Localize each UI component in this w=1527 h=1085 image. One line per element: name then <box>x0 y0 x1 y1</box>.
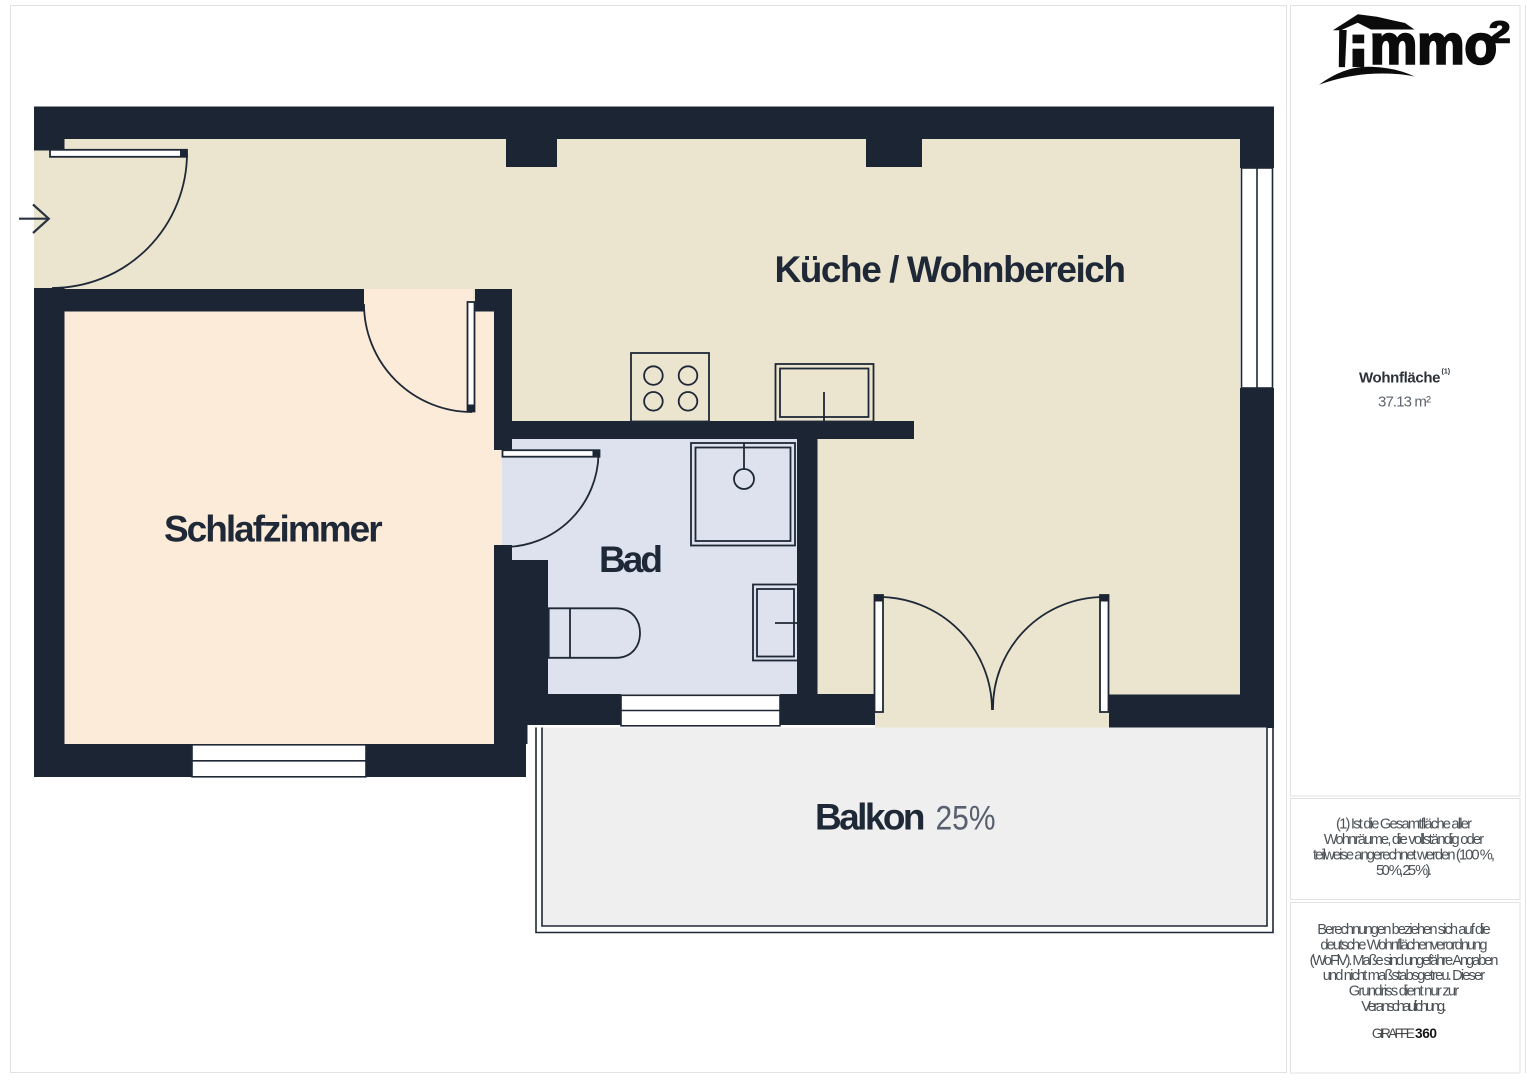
svg-text:2: 2 <box>1489 16 1511 50</box>
svg-text:Küche / Wohnbereich: Küche / Wohnbereich <box>775 249 1127 290</box>
svg-text:37.13 m²: 37.13 m² <box>1378 394 1431 411</box>
svg-text:Veranschaulichung.: Veranschaulichung. <box>1361 999 1447 1015</box>
svg-text:Wohnfläche: Wohnfläche <box>1359 370 1441 387</box>
svg-text:Schlafzimmer: Schlafzimmer <box>164 509 383 550</box>
svg-text:25%: 25% <box>936 800 996 838</box>
svg-text:Bad: Bad <box>599 539 663 580</box>
svg-text:GIRAFFE: GIRAFFE <box>1372 1026 1415 1041</box>
svg-text:Balkon: Balkon <box>815 797 926 838</box>
svg-text:Wohnräume, die vollständig ode: Wohnräume, die vollständig oder <box>1324 832 1485 848</box>
svg-text:deutsche Wohnflächenverordnung: deutsche Wohnflächenverordnung <box>1320 937 1487 953</box>
svg-text:(1): (1) <box>1442 369 1451 376</box>
svg-text:360: 360 <box>1415 1026 1437 1041</box>
svg-text:(WoFlV). Maße sind ungefähre A: (WoFlV). Maße sind ungefähre Angaben <box>1310 953 1499 969</box>
svg-text:teilweise angerechnet werden (: teilweise angerechnet werden (100 %, <box>1313 847 1495 863</box>
svg-text:50 %, 25 %).: 50 %, 25 %). <box>1376 863 1432 879</box>
svg-text:(1) Ist die Gesamtfläche aller: (1) Ist die Gesamtfläche aller <box>1336 817 1472 833</box>
svg-text:Grundriss dient nur zur: Grundriss dient nur zur <box>1349 984 1460 1000</box>
svg-text:Berechnungen beziehen sich auf: Berechnungen beziehen sich auf die <box>1317 922 1491 938</box>
svg-text:und nicht maßstabsgetreu. Dies: und nicht maßstabsgetreu. Dieser <box>1323 968 1486 984</box>
svg-text:mmo: mmo <box>1370 14 1497 76</box>
